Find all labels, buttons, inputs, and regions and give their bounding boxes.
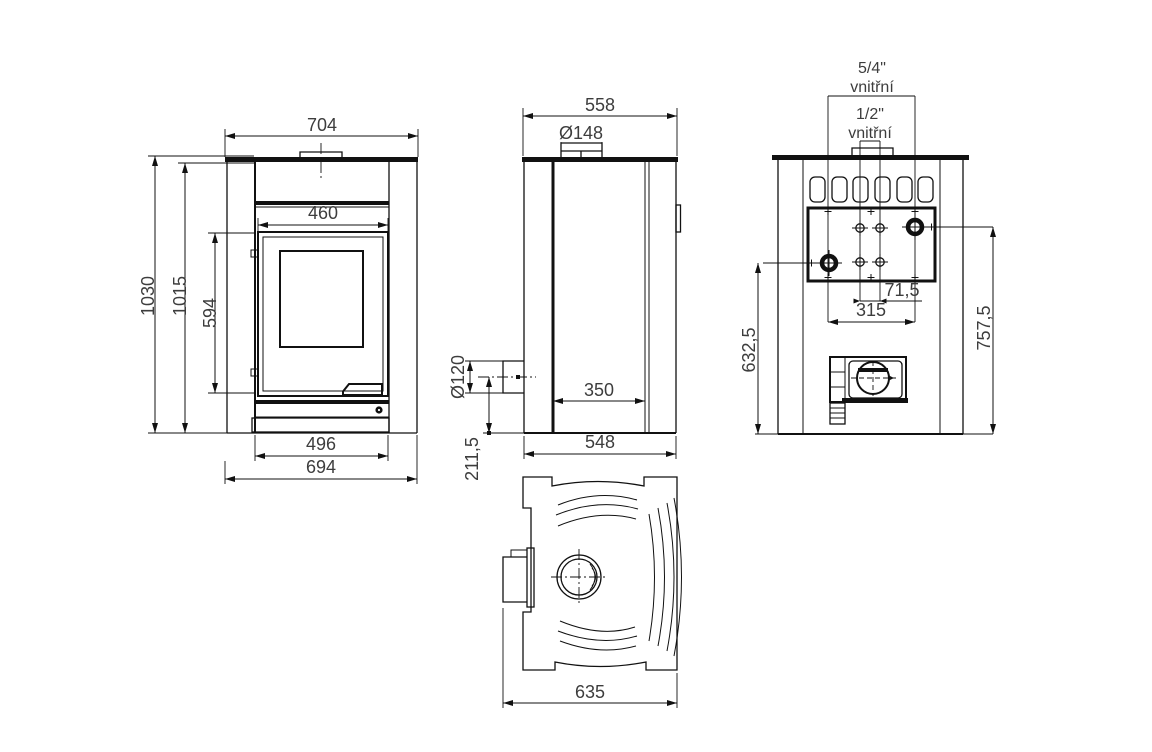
top-outline xyxy=(523,477,677,670)
small-fittings xyxy=(852,220,888,270)
rear-flue-collar xyxy=(852,148,893,155)
side-rear-panel-lines xyxy=(645,162,649,433)
door-frame xyxy=(258,232,388,396)
top-outlet-pipe xyxy=(503,557,527,602)
dim-label-fitting-height-right: 757,5 xyxy=(974,305,994,350)
vent-slot xyxy=(897,177,912,202)
dim-label-door-height: 594 xyxy=(200,298,220,328)
dim-label-fitting-spacing-large: 315 xyxy=(856,300,886,320)
front-plinth xyxy=(252,418,389,432)
side-flue-collar xyxy=(561,143,602,157)
valve-pointer xyxy=(888,375,894,381)
top-outlet-step xyxy=(511,550,527,557)
rear-top-plate xyxy=(772,155,969,160)
valve-assembly xyxy=(830,357,908,424)
stove-technical-drawing: 704 460 1030 1015 594 496 694 xyxy=(0,0,1152,752)
large-fittings xyxy=(816,214,928,276)
label-fitting-large-note: vnitřní xyxy=(850,79,894,96)
dim-label-firebox-opening-width: 460 xyxy=(308,203,338,223)
dim-label-depth-overall: 635 xyxy=(575,682,605,702)
dim-label-body-height: 1015 xyxy=(170,276,190,316)
rear-view: 5/4" vnitřní 1/2" vnitřní 71,5 315 757,5… xyxy=(739,60,994,434)
drawing-canvas: 704 460 1030 1015 594 496 694 xyxy=(0,0,1152,752)
dim-label-depth-bottom: 548 xyxy=(585,432,615,452)
top-decor-arcs xyxy=(556,496,682,656)
vent-slot xyxy=(875,177,890,202)
vent-slot xyxy=(918,177,933,202)
dim-label-outlet-axis-height: 211,5 xyxy=(462,437,482,481)
dim-label-base-width: 694 xyxy=(306,457,336,477)
dim-label-outlet-diameter: Ø120 xyxy=(448,355,468,399)
top-view: 635 xyxy=(503,477,682,708)
vent-slot xyxy=(853,177,868,202)
valve-base-plate xyxy=(842,398,908,403)
dim-label-depth-top: 558 xyxy=(585,95,615,115)
ext-heights xyxy=(148,156,254,433)
vent-slot xyxy=(810,177,825,202)
valve-drain-ribs xyxy=(830,408,845,418)
ash-knob-center xyxy=(378,409,380,411)
front-top-plate xyxy=(225,157,418,162)
label-fitting-small: 1/2" xyxy=(856,106,884,123)
dim-label-flue-diameter: Ø148 xyxy=(559,123,603,143)
label-fitting-large: 5/4" xyxy=(858,60,886,77)
valve-terminal-block xyxy=(830,357,845,402)
side-view: 558 Ø148 Ø120 350 211,5 548 xyxy=(448,95,681,481)
door-handle xyxy=(343,384,382,395)
front-view: 704 460 1030 1015 594 496 694 xyxy=(138,115,418,484)
dim-label-base-inner-width: 496 xyxy=(306,434,336,454)
dim-label-firebox-depth: 350 xyxy=(584,380,614,400)
label-fitting-small-note: vnitřní xyxy=(848,125,892,142)
dim-label-fitting-height-left: 632,5 xyxy=(739,327,759,372)
dim-label-fitting-spacing-small: 71,5 xyxy=(884,280,919,300)
dim-label-front-width-top: 704 xyxy=(307,115,337,135)
front-base-bar xyxy=(255,400,389,404)
outlet-center-mark xyxy=(516,375,520,379)
side-handle-tab xyxy=(676,205,681,232)
top-flue-centerlines xyxy=(551,549,608,606)
side-top-plate xyxy=(522,157,678,162)
door-glass xyxy=(280,251,363,347)
dim-label-total-height: 1030 xyxy=(138,276,158,316)
vent-slot xyxy=(832,177,847,202)
